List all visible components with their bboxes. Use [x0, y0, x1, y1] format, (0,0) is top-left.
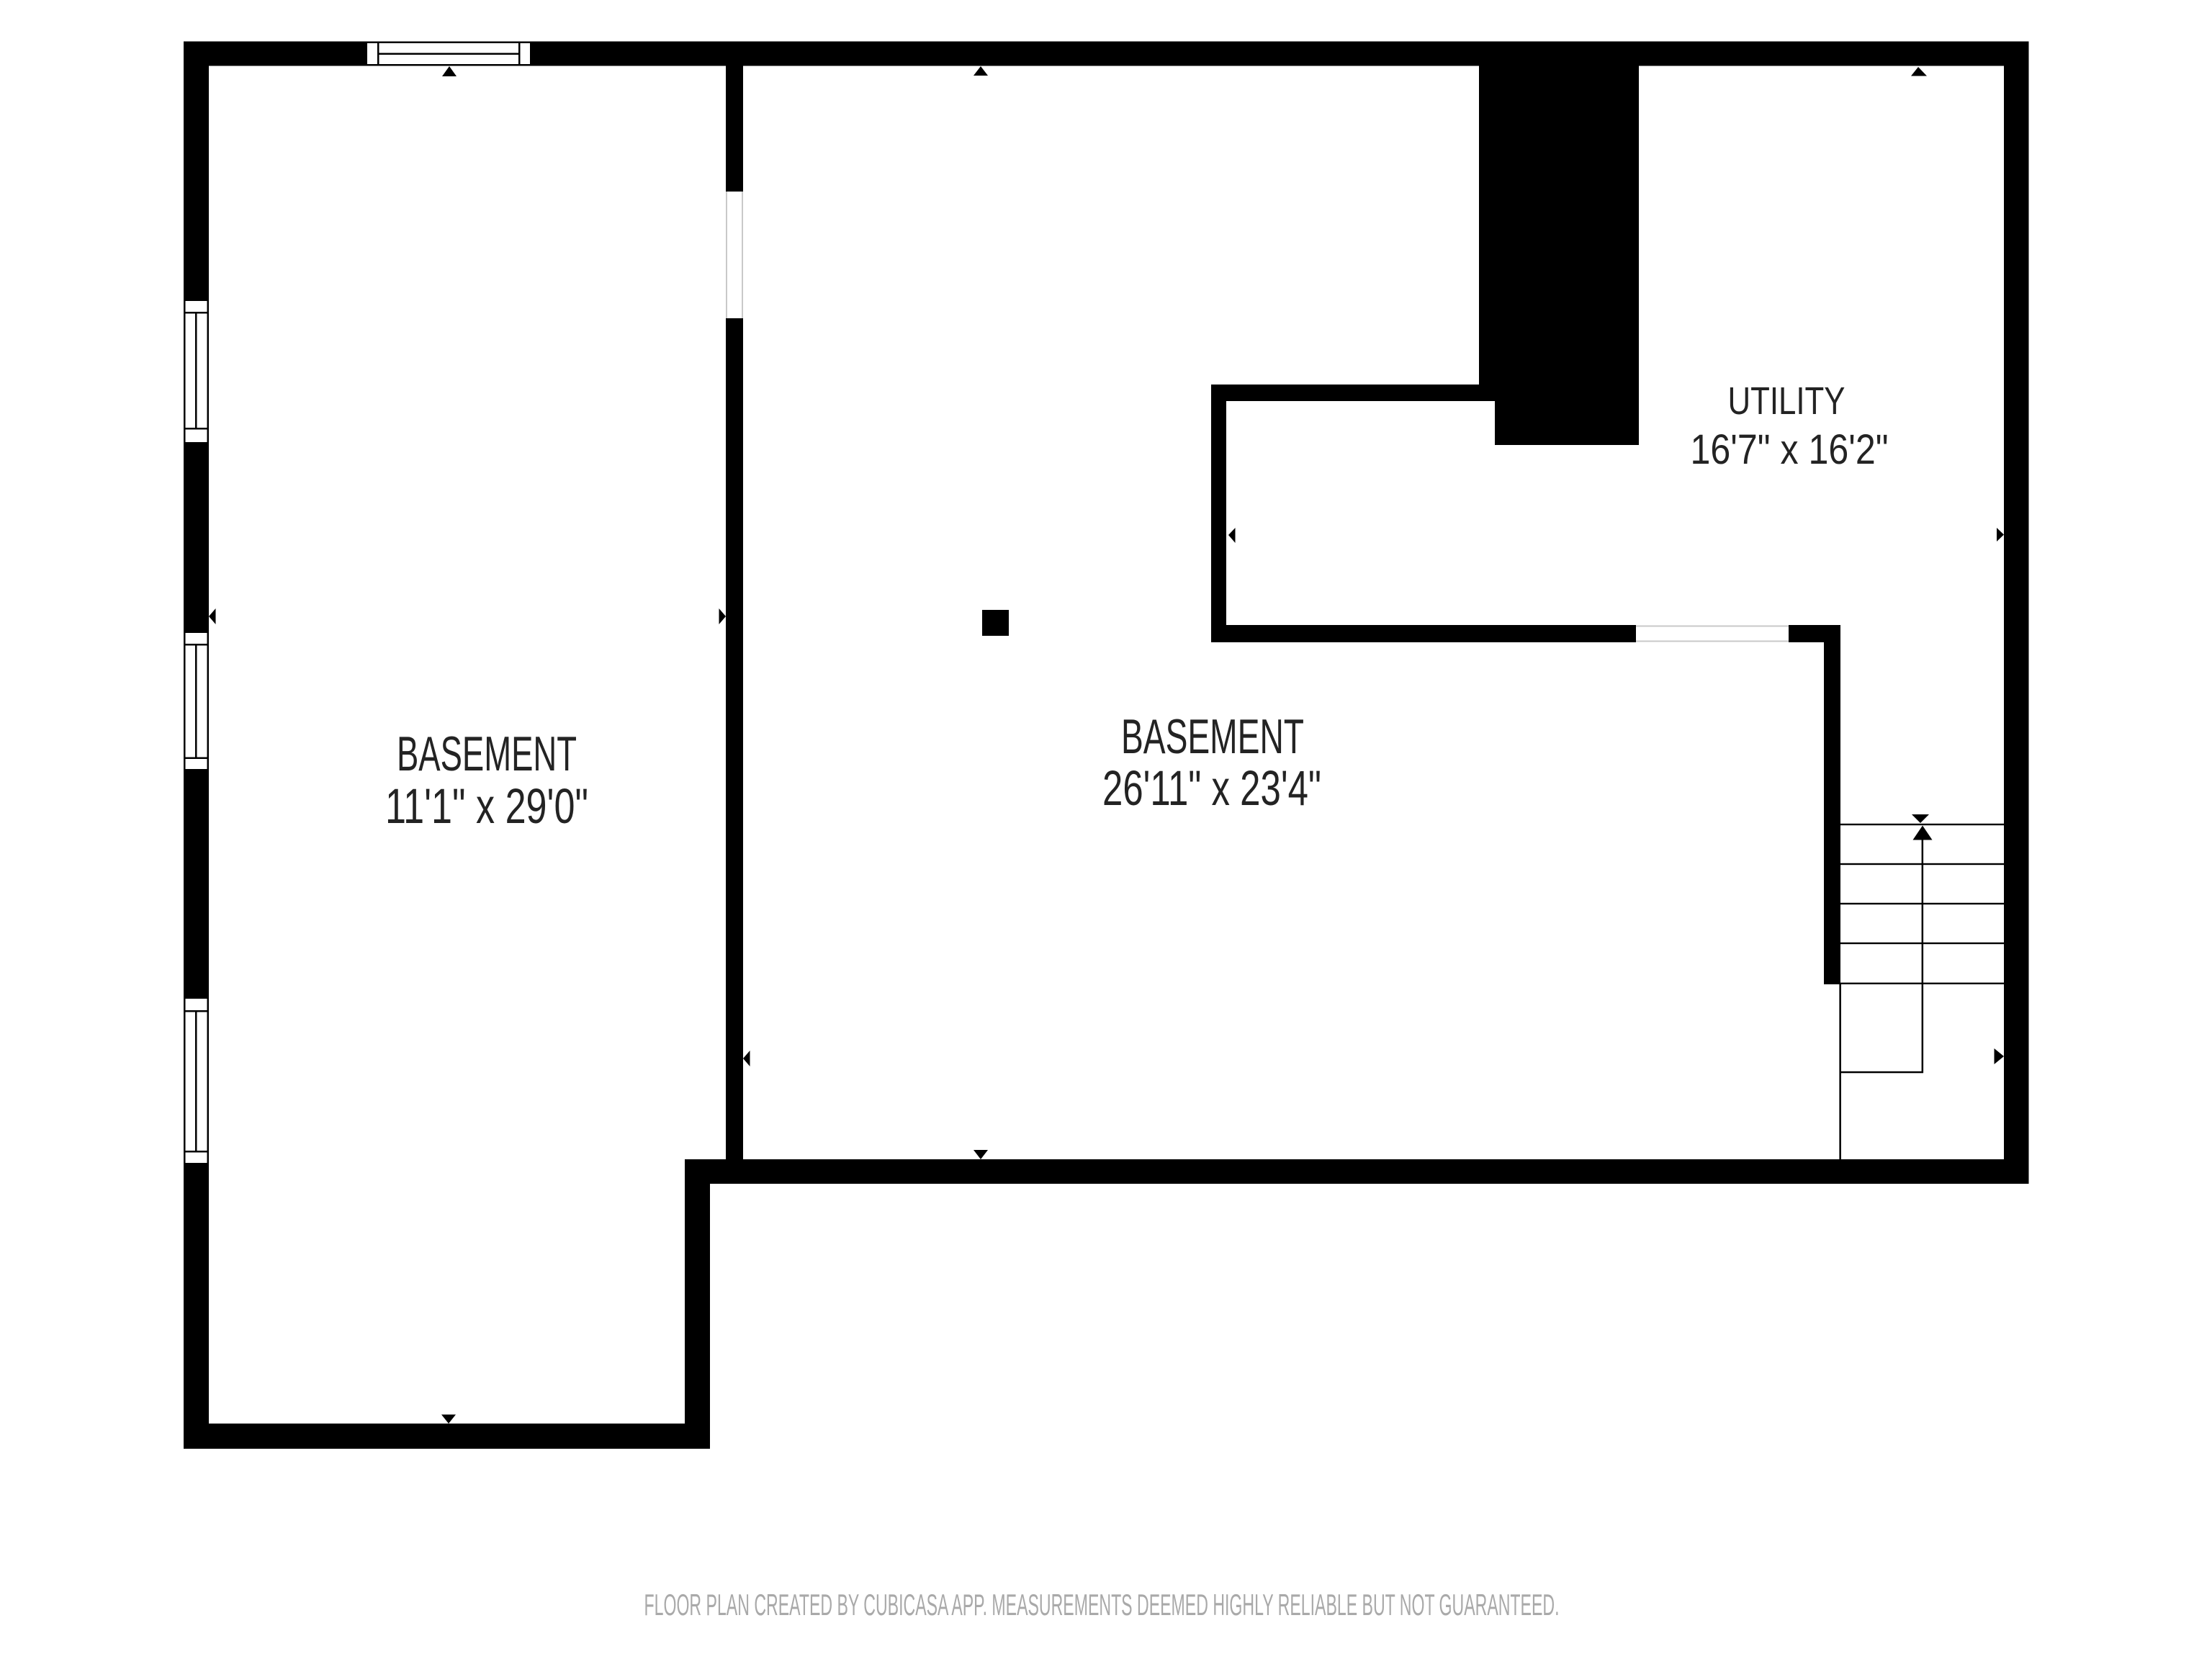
svg-text:BASEMENT: BASEMENT: [1121, 709, 1304, 764]
svg-text:11'1" x 29'0": 11'1" x 29'0": [385, 778, 588, 834]
svg-text:26'11" x 23'4": 26'11" x 23'4": [1102, 760, 1321, 816]
svg-text:FLOOR PLAN CREATED BY CUBICASA: FLOOR PLAN CREATED BY CUBICASA APP. MEAS…: [644, 1588, 1560, 1622]
svg-text:UTILITY: UTILITY: [1728, 379, 1845, 423]
svg-text:BASEMENT: BASEMENT: [397, 727, 577, 781]
svg-text:16'7" x 16'2": 16'7" x 16'2": [1691, 426, 1889, 473]
